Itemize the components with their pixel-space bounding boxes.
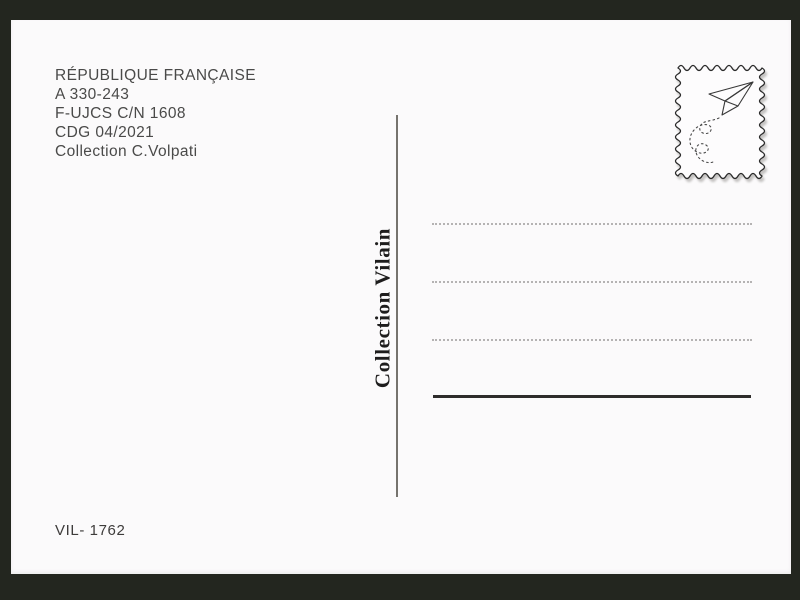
- address-line-2: [432, 281, 752, 283]
- caption-line-collection: Collection C.Volpati: [55, 142, 256, 161]
- postcard-back: RÉPUBLIQUE FRANÇAISE A 330-243 F-UJCS C/…: [11, 20, 791, 574]
- address-line-3: [432, 339, 752, 341]
- postcard-scan-background: RÉPUBLIQUE FRANÇAISE A 330-243 F-UJCS C/…: [0, 0, 800, 600]
- caption-line-aircraft-type: A 330-243: [55, 85, 256, 104]
- signature-line: [433, 395, 751, 398]
- caption-line-country: RÉPUBLIQUE FRANÇAISE: [55, 66, 256, 85]
- reference-number: VIL- 1762: [55, 522, 125, 539]
- center-divider-line: [396, 115, 398, 497]
- address-line-1: [432, 223, 752, 225]
- stamp-box: [672, 58, 769, 186]
- publisher-vertical-label: Collection Vilain: [371, 228, 396, 388]
- caption-line-registration: F-UJCS C/N 1608: [55, 104, 256, 123]
- caption-block: RÉPUBLIQUE FRANÇAISE A 330-243 F-UJCS C/…: [55, 66, 256, 161]
- caption-line-location-date: CDG 04/2021: [55, 123, 256, 142]
